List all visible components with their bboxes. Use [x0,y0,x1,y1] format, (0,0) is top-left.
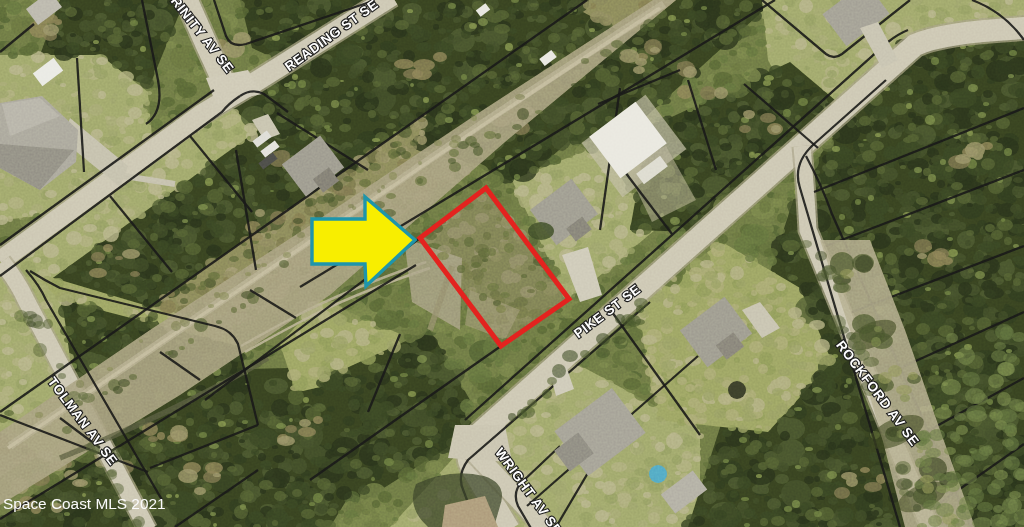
svg-text:Space Coast MLS 2021: Space Coast MLS 2021 [3,495,166,512]
